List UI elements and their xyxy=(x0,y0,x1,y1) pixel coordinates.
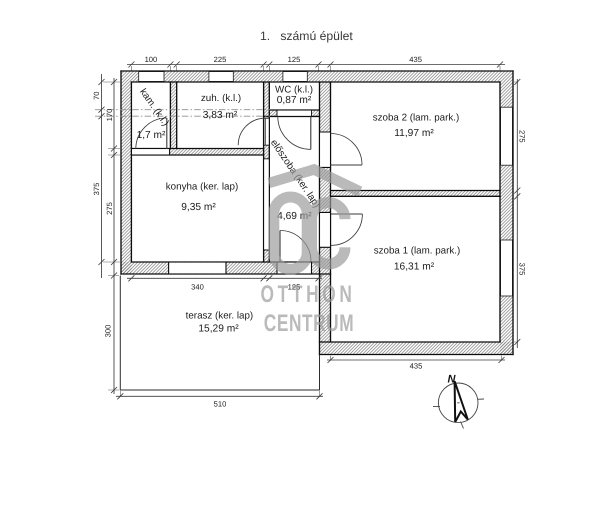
svg-text:konyha (ker. lap): konyha (ker. lap) xyxy=(166,182,238,193)
svg-text:125: 125 xyxy=(288,55,301,64)
svg-text:100: 100 xyxy=(145,55,158,64)
svg-text:szoba 2 (lam. park.): szoba 2 (lam. park.) xyxy=(373,113,460,124)
svg-text:375: 375 xyxy=(517,263,526,276)
svg-text:zuh. (k.l.): zuh. (k.l.) xyxy=(201,93,241,104)
svg-text:70: 70 xyxy=(92,92,101,100)
svg-text:225: 225 xyxy=(214,55,227,64)
svg-text:N: N xyxy=(448,374,457,386)
svg-text:0,87 m²: 0,87 m² xyxy=(277,95,312,106)
svg-text:170: 170 xyxy=(105,109,114,122)
svg-text:340: 340 xyxy=(191,282,204,291)
svg-text:1,7 m²: 1,7 m² xyxy=(137,130,166,141)
svg-text:CENTRUM: CENTRUM xyxy=(264,310,354,337)
svg-text:OTTHON: OTTHON xyxy=(261,281,356,308)
svg-text:510: 510 xyxy=(214,400,227,409)
svg-text:300: 300 xyxy=(104,325,113,338)
svg-text:15,29 m²: 15,29 m² xyxy=(198,324,239,335)
svg-text:1. számú épület: 1. számú épület xyxy=(260,29,353,43)
svg-text:435: 435 xyxy=(410,361,423,370)
svg-text:terasz (ker. lap): terasz (ker. lap) xyxy=(186,310,254,321)
svg-text:275: 275 xyxy=(105,202,114,215)
svg-text:375: 375 xyxy=(92,183,101,196)
svg-text:9,35 m²: 9,35 m² xyxy=(181,202,216,213)
svg-text:11,97 m²: 11,97 m² xyxy=(394,128,434,139)
svg-text:435: 435 xyxy=(409,55,422,64)
svg-text:275: 275 xyxy=(517,130,526,143)
svg-text:szoba 1 (lam. park.): szoba 1 (lam. park.) xyxy=(374,246,461,257)
svg-text:3,83 m²: 3,83 m² xyxy=(203,110,238,121)
svg-text:16,31 m²: 16,31 m² xyxy=(394,262,435,273)
svg-text:WC (k.l.): WC (k.l.) xyxy=(275,85,313,96)
